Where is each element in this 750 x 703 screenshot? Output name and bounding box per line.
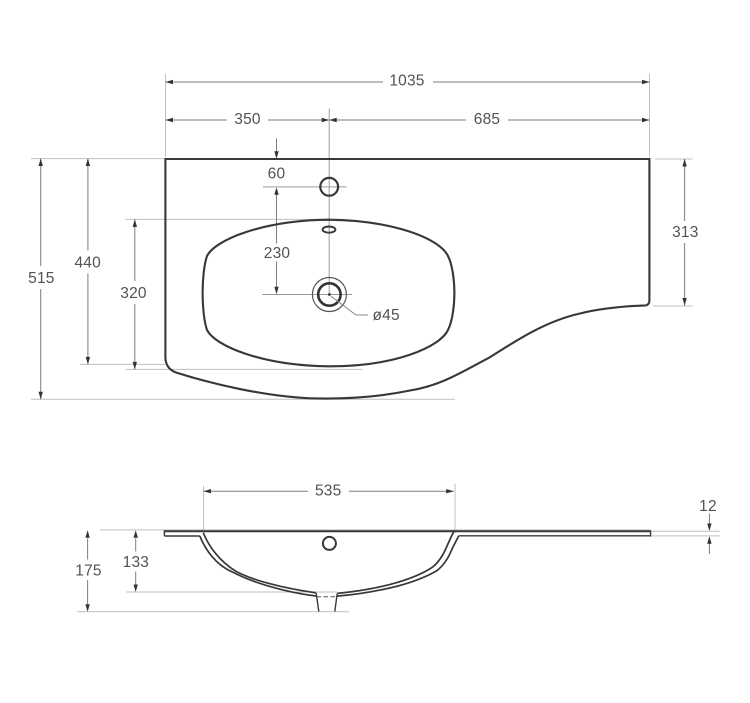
svg-text:313: 313 [672, 224, 698, 241]
svg-text:350: 350 [234, 111, 261, 128]
svg-text:133: 133 [123, 554, 149, 571]
svg-text:535: 535 [315, 483, 341, 500]
svg-text:515: 515 [28, 270, 54, 287]
svg-text:685: 685 [474, 111, 500, 128]
svg-text:230: 230 [264, 245, 291, 262]
svg-text:60: 60 [268, 166, 286, 183]
svg-text:1035: 1035 [389, 73, 424, 90]
svg-text:12: 12 [699, 498, 717, 515]
svg-text:175: 175 [75, 563, 101, 580]
svg-text:ø45: ø45 [373, 307, 400, 324]
svg-text:320: 320 [120, 285, 147, 302]
svg-text:440: 440 [74, 255, 101, 272]
